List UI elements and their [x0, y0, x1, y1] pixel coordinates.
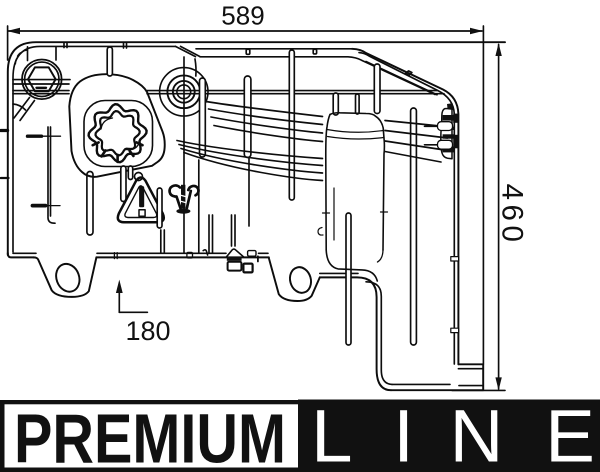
svg-text:460: 460	[495, 184, 528, 247]
svg-text:N: N	[450, 394, 504, 472]
svg-text:589: 589	[221, 1, 264, 31]
svg-text:I: I	[393, 394, 414, 472]
svg-text:PREMIUM: PREMIUM	[14, 399, 286, 472]
svg-text:E: E	[545, 394, 595, 472]
svg-text:180: 180	[125, 316, 170, 346]
svg-text:L: L	[311, 394, 352, 472]
